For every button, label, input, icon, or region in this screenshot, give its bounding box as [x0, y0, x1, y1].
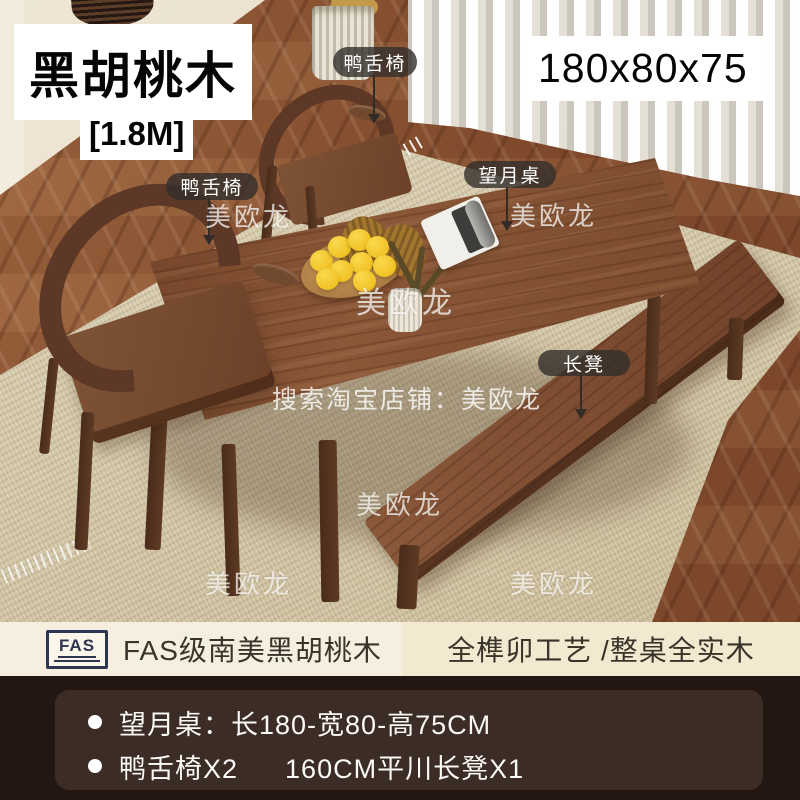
dimensions-label: 180x80x75 — [521, 36, 765, 101]
arrow-down-icon — [203, 235, 215, 245]
scene-photo: 黑胡桃木 [1.8M] 180x80x75 鸭舌椅 鸭舌椅 望月桌 长凳 美欧龙… — [0, 0, 800, 622]
watermark: 美欧龙 — [510, 564, 597, 601]
bench-leg — [396, 545, 419, 610]
watermark: 美欧龙 — [205, 197, 292, 234]
callout-bench: 长凳 — [538, 350, 630, 376]
craft-label: 全榫卯工艺 /整桌全实木 — [447, 629, 755, 669]
callout-chair-front: 鸭舌椅 — [166, 173, 258, 200]
table-leg — [319, 440, 340, 602]
bench-leg — [727, 318, 744, 380]
fas-logo: FAS — [46, 630, 108, 669]
material-grade-label: FAS级南美黑胡桃木 — [123, 629, 382, 669]
callout-chair-back: 鸭舌椅 — [333, 47, 417, 77]
material-title: 黑胡桃木 — [14, 24, 252, 120]
banner-material: FAS FAS级南美黑胡桃木 — [0, 622, 402, 676]
watermark: 美欧龙 — [356, 485, 443, 522]
spec-row-seating: 鸭舌椅X2 160CM平川长凳X1 — [88, 747, 763, 785]
callout-arrow — [580, 375, 582, 413]
fas-logo-line — [54, 660, 100, 662]
banner-craft: 全榫卯工艺 /整桌全实木 — [402, 622, 800, 676]
callout-table: 望月桌 — [464, 161, 556, 188]
feature-banner: FAS FAS级南美黑胡桃木 全榫卯工艺 /整桌全实木 — [0, 622, 800, 676]
fas-logo-line — [58, 656, 96, 658]
lemon — [316, 268, 339, 290]
arrow-down-icon — [575, 409, 587, 419]
table-spec: 望月桌：长180-宽80-高75CM — [119, 703, 491, 742]
lemon — [373, 255, 396, 277]
product-image: 黑胡桃木 [1.8M] 180x80x75 鸭舌椅 鸭舌椅 望月桌 长凳 美欧龙… — [0, 0, 800, 800]
watermark: 美欧龙 — [510, 196, 597, 233]
bench-spec: 160CM平川长凳X1 — [285, 747, 524, 786]
spec-panel: 望月桌：长180-宽80-高75CM 鸭舌椅X2 160CM平川长凳X1 — [55, 690, 763, 790]
arrow-down-icon — [368, 114, 380, 124]
bullet-dot-icon — [88, 715, 102, 729]
spec-section: 望月桌：长180-宽80-高75CM 鸭舌椅X2 160CM平川长凳X1 — [0, 676, 800, 800]
callout-arrow — [373, 76, 375, 118]
spec-row-table: 望月桌：长180-宽80-高75CM — [88, 703, 763, 741]
shop-search-watermark: 搜索淘宝店铺：美欧龙 — [272, 380, 542, 416]
chair-spec: 鸭舌椅X2 — [119, 747, 238, 786]
callout-arrow — [506, 187, 508, 225]
watermark: 美欧龙 — [356, 278, 455, 322]
fas-logo-text: FAS — [59, 637, 95, 654]
watermark: 美欧龙 — [205, 564, 292, 601]
size-tag: [1.8M] — [80, 108, 193, 160]
bullet-dot-icon — [88, 759, 102, 773]
